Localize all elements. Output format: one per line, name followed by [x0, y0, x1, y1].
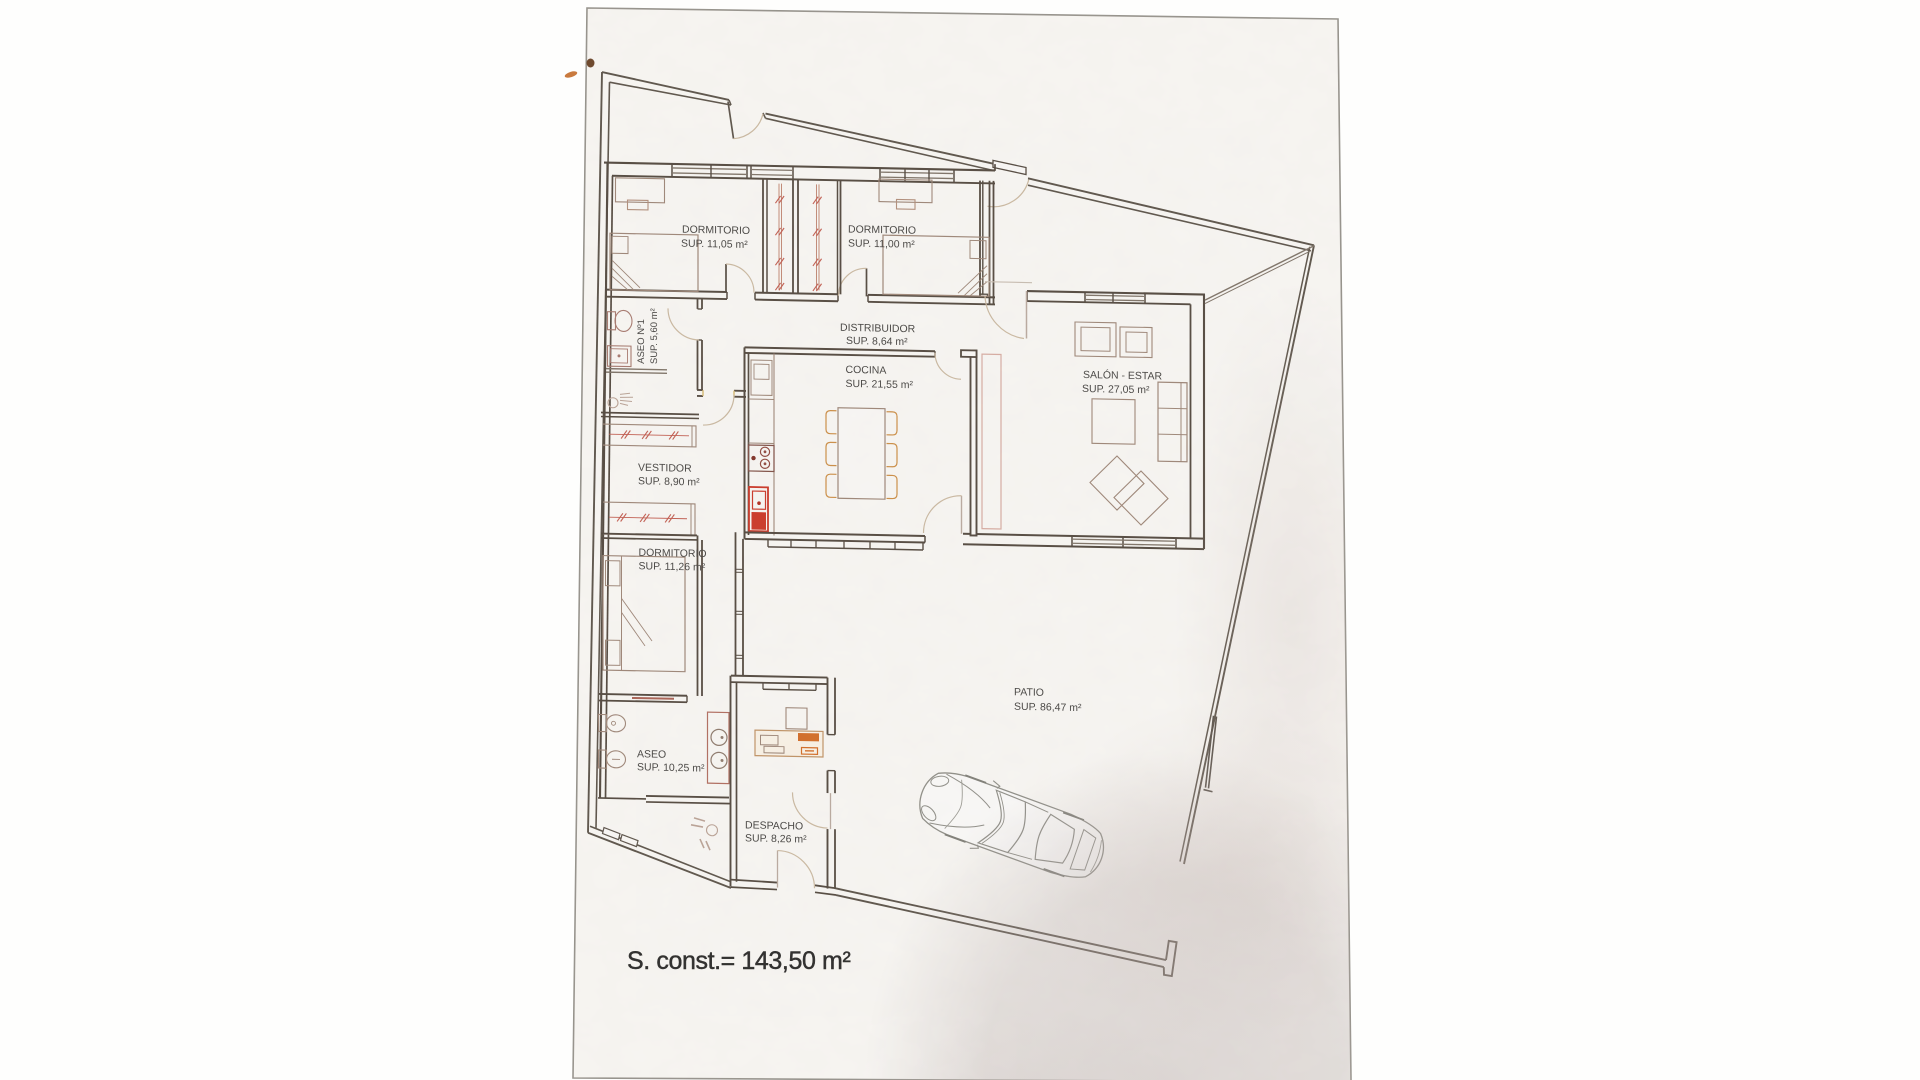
svg-text:S. const.= 143,50 m²: S. const.= 143,50 m²	[627, 947, 850, 975]
